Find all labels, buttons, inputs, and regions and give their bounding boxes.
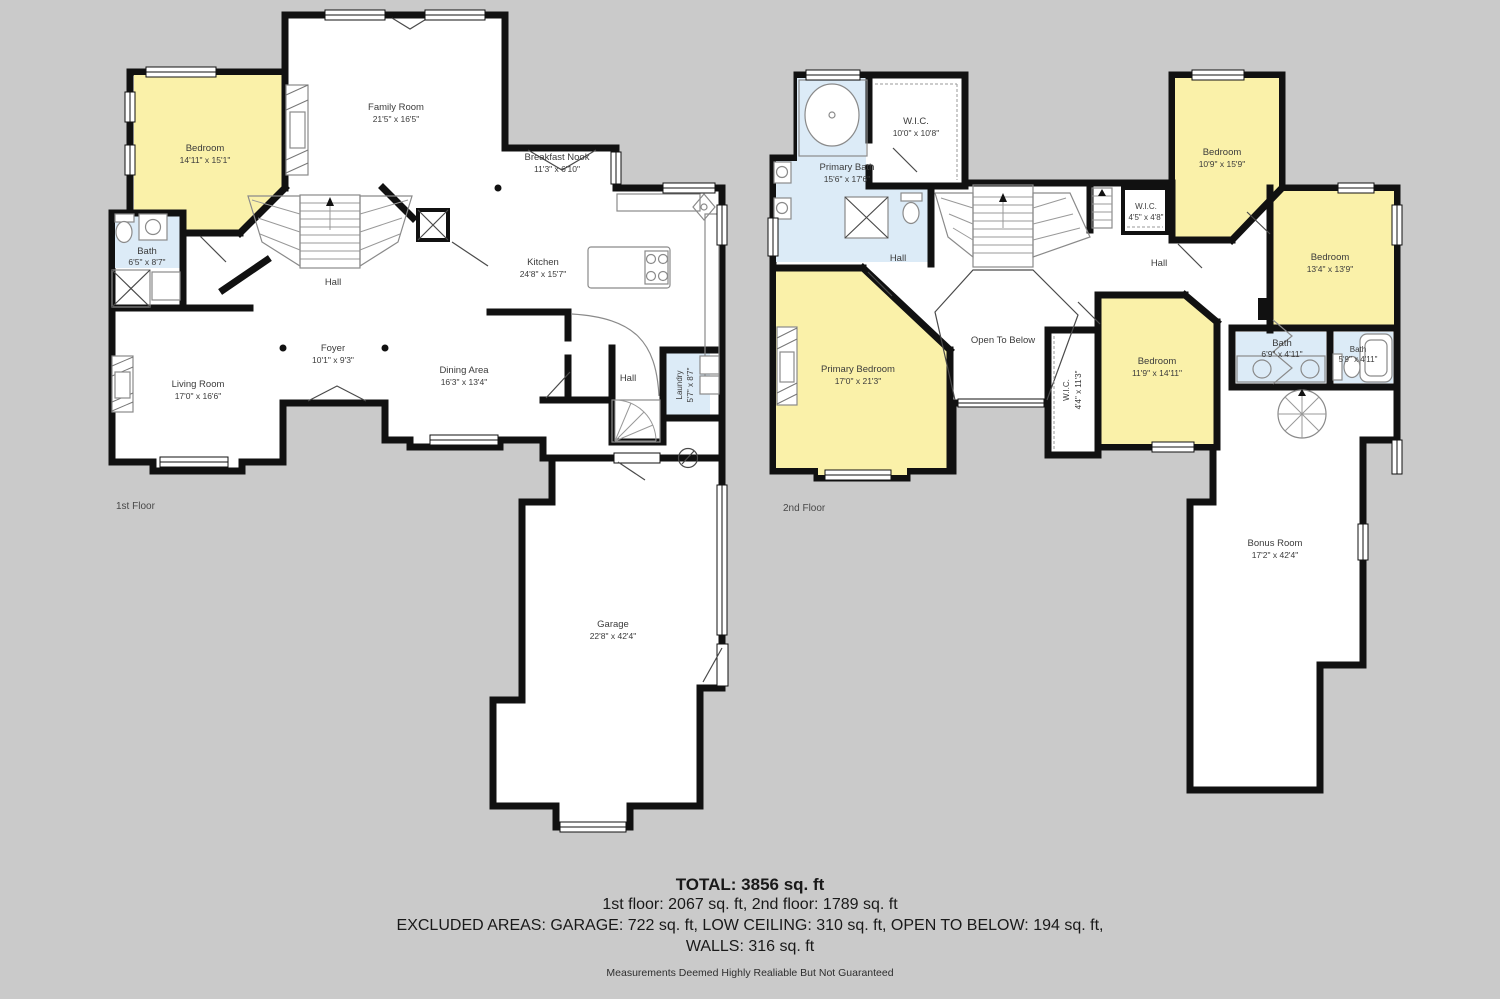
- floor1-label: 1st Floor: [116, 501, 156, 512]
- label-living-room: Living Room: [172, 379, 225, 390]
- garage-door-gap: [717, 644, 728, 686]
- dims-garage: 22'8" x 42'4": [590, 631, 637, 641]
- dims-bedroom-top: 10'9" x 15'9": [1199, 159, 1246, 169]
- label-bedroom-center: Bedroom: [1138, 356, 1177, 367]
- dims-wic-bedroom: 4'4" x 11'3": [1074, 370, 1083, 409]
- dims-laundry: 5'7" x 8'7": [686, 367, 695, 402]
- summary-total: TOTAL: 3856 sq. ft: [0, 874, 1500, 895]
- summary-disclaimer: Measurements Deemed Highly Realiable But…: [0, 967, 1500, 979]
- dims-wic-hall: 4'5" x 4'8": [1129, 213, 1164, 222]
- label-wic-hall: W.I.C.: [1135, 202, 1157, 211]
- label-primary-bedroom: Primary Bedroom: [821, 364, 895, 375]
- dims-bath-1f: 6'5" x 8'7": [128, 257, 165, 267]
- label-bedroom-right: Bedroom: [1311, 252, 1350, 263]
- stairs-spiral-2f-icon: [1278, 389, 1326, 438]
- dims-living-room: 17'0" x 16'6": [175, 391, 222, 401]
- dims-dining-area: 16'3" x 13'4": [441, 377, 488, 387]
- column-dot: [382, 345, 389, 352]
- label-bath-1f: Bath: [137, 246, 157, 257]
- label-bonus-room: Bonus Room: [1248, 538, 1303, 549]
- dims-bedroom-right: 13'4" x 13'9": [1307, 264, 1354, 274]
- label-primary-bath: Primary Bath: [820, 162, 875, 173]
- label-dining-area: Dining Area: [439, 365, 489, 376]
- dims-bedroom-1f: 14'11" x 15'1": [180, 155, 231, 165]
- dims-foyer: 10'1" x 9'3": [312, 355, 354, 365]
- label-hall-left-2f: Hall: [890, 253, 906, 264]
- floor1-plan: Bedroom 14'11" x 15'1" Bath 6'5" x 8'7" …: [112, 10, 728, 832]
- dims-kitchen: 24'8" x 15'7": [520, 269, 567, 279]
- label-hall-right-2f: Hall: [1151, 258, 1167, 269]
- label-wic-primary: W.I.C.: [903, 116, 929, 127]
- label-bedroom-top: Bedroom: [1203, 147, 1242, 158]
- label-bath-double: Bath: [1272, 338, 1292, 349]
- floor2-label: 2nd Floor: [783, 503, 826, 514]
- summary-walls: WALLS: 316 sq. ft: [0, 937, 1500, 958]
- floorplan-svg: Bedroom 14'11" x 15'1" Bath 6'5" x 8'7" …: [0, 0, 1500, 999]
- column-dot: [495, 185, 502, 192]
- label-laundry: Laundry: [675, 371, 684, 400]
- label-foyer: Foyer: [321, 343, 345, 354]
- label-kitchen: Kitchen: [527, 257, 559, 268]
- dims-breakfast-nook: 11'3" x 6'10": [534, 164, 580, 174]
- dims-family-room: 21'5" x 16'5": [373, 114, 420, 124]
- dims-primary-bath: 15'6" x 17'6": [824, 174, 871, 184]
- dims-wic-primary: 10'0" x 10'8": [893, 128, 940, 138]
- label-wic-bedroom: W.I.C.: [1062, 379, 1071, 401]
- column-dot: [280, 345, 287, 352]
- floorplan-canvas: Bedroom 14'11" x 15'1" Bath 6'5" x 8'7" …: [0, 0, 1500, 999]
- dims-bonus-room: 17'2" x 42'4": [1252, 550, 1299, 560]
- fireplace-living-icon: [112, 356, 133, 412]
- label-hall-rear: Hall: [620, 373, 636, 384]
- dims-bath-double: 6'9" x 4'11": [1261, 349, 1302, 359]
- summary-floors: 1st floor: 2067 sq. ft, 2nd floor: 1789 …: [0, 895, 1500, 916]
- fireplace-primary-icon: [777, 327, 797, 405]
- dims-primary-bedroom: 17'0" x 21'3": [835, 376, 882, 386]
- label-garage: Garage: [597, 619, 629, 630]
- label-breakfast-nook: Breakfast Nook: [525, 152, 590, 163]
- label-family-room: Family Room: [368, 102, 424, 113]
- dims-bath-single: 5'9" x 4'11": [1339, 355, 1378, 364]
- summary-excluded: EXCLUDED AREAS: GARAGE: 722 sq. ft, LOW …: [0, 916, 1500, 937]
- garage-entry-gap: [614, 453, 660, 463]
- summary-block: TOTAL: 3856 sq. ft 1st floor: 2067 sq. f…: [0, 874, 1500, 979]
- label-open-to-below: Open To Below: [971, 335, 1035, 346]
- dims-bedroom-center: 11'9" x 14'11": [1132, 368, 1182, 378]
- floor2-plan: Primary Bath 15'6" x 17'6" W.I.C. 10'0" …: [768, 70, 1402, 790]
- label-hall-1f: Hall: [325, 277, 341, 288]
- label-bath-single: Bath: [1350, 345, 1366, 354]
- fireplace-family-icon: [286, 85, 308, 175]
- label-bedroom-1f: Bedroom: [186, 143, 225, 154]
